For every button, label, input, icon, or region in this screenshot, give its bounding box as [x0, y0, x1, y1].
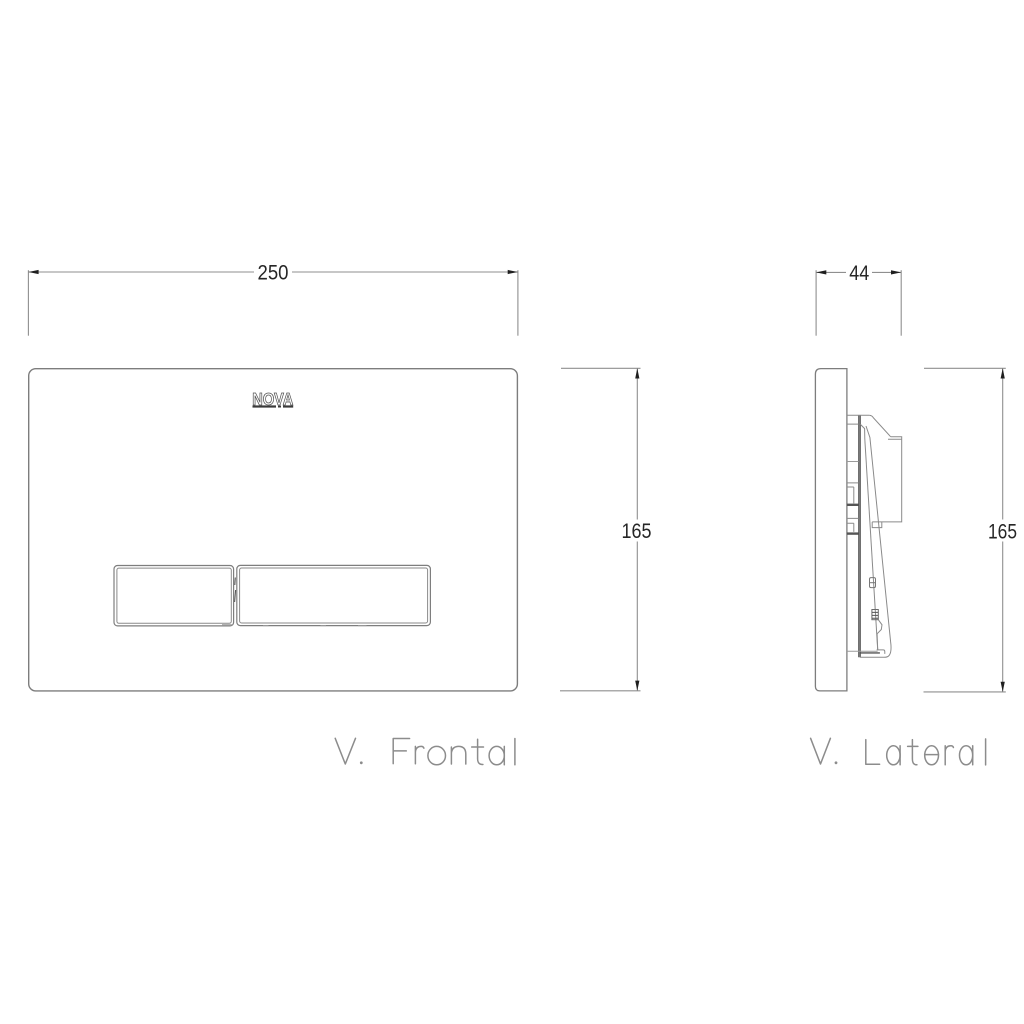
svg-text:165: 165 — [988, 520, 1017, 543]
svg-text:44: 44 — [849, 262, 869, 285]
svg-text:250: 250 — [258, 262, 289, 285]
svg-text:165: 165 — [622, 520, 652, 543]
